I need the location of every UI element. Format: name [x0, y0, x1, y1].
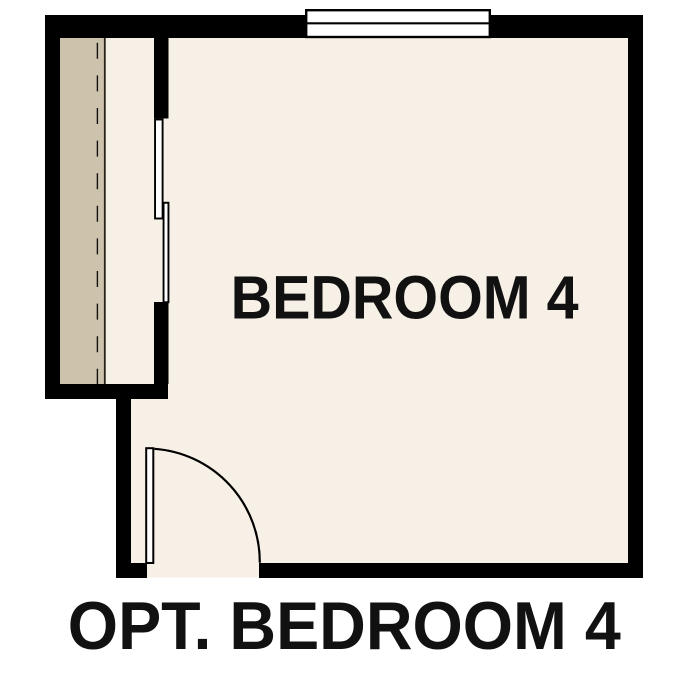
svg-text:OPT. BEDROOM 4: OPT. BEDROOM 4 [68, 588, 621, 664]
svg-text:BEDROOM 4: BEDROOM 4 [231, 264, 579, 332]
